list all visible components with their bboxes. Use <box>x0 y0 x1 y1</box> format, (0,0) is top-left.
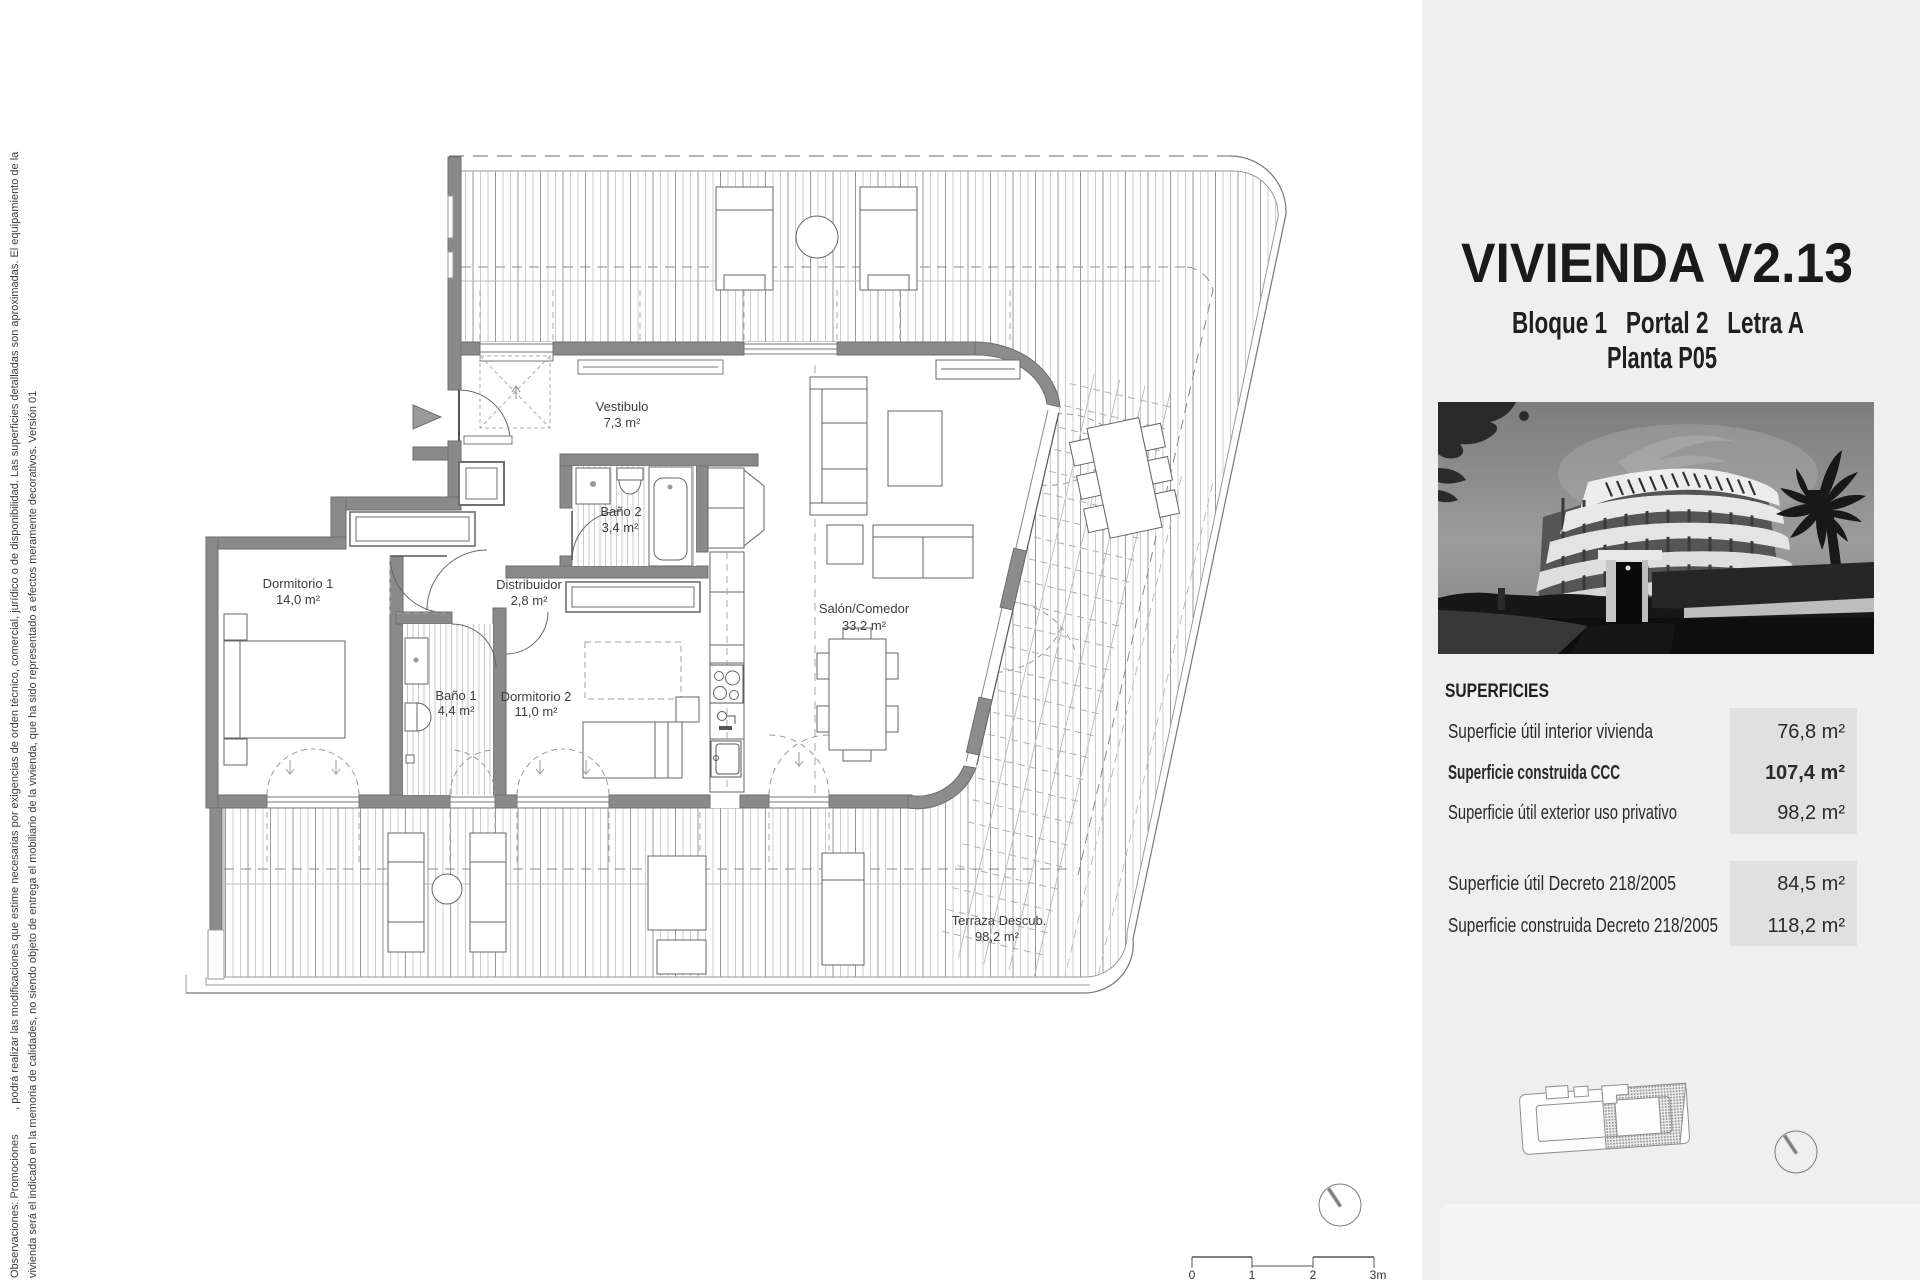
svg-text:98,2 m²: 98,2 m² <box>1777 802 1845 824</box>
svg-text:vivienda será el indicado en l: vivienda será el indicado en la memoria … <box>27 391 39 1278</box>
svg-text:1: 1 <box>1249 1268 1256 1280</box>
svg-text:Bloque 1 Portal 2 Letra A: Bloque 1 Portal 2 Letra A <box>1512 305 1804 340</box>
svg-text:Vestibulo: Vestibulo <box>596 399 649 414</box>
svg-text:0: 0 <box>1189 1268 1196 1280</box>
svg-text:107,4 m²: 107,4 m² <box>1765 762 1845 784</box>
svg-text:Planta P05: Planta P05 <box>1607 340 1717 375</box>
svg-text:VIVIENDA V2.13: VIVIENDA V2.13 <box>1461 231 1853 294</box>
svg-text:76,8 m²: 76,8 m² <box>1777 721 1845 743</box>
svg-text:2: 2 <box>1310 1268 1317 1280</box>
svg-text:Salón/Comedor: Salón/Comedor <box>819 601 910 616</box>
svg-text:7,3 m²: 7,3 m² <box>604 415 642 430</box>
svg-text:98,2 m²: 98,2 m² <box>975 929 1020 944</box>
svg-text:33,2 m²: 33,2 m² <box>842 618 887 633</box>
svg-text:11,0 m²: 11,0 m² <box>514 704 558 719</box>
svg-text:Baño 2: Baño 2 <box>600 504 641 519</box>
svg-text:SUPERFICIES: SUPERFICIES <box>1445 681 1549 702</box>
svg-text:Superficie útil interior vivie: Superficie útil interior vivienda <box>1448 721 1654 743</box>
svg-text:14,0 m²: 14,0 m² <box>276 592 321 607</box>
svg-text:Superficie construida Decreto: Superficie construida Decreto 218/2005 <box>1448 915 1718 937</box>
svg-text:Terraza Descub.: Terraza Descub. <box>952 913 1047 928</box>
svg-text:Baño 1: Baño 1 <box>435 688 476 703</box>
svg-text:Superficie útil Decreto 218/20: Superficie útil Decreto 218/2005 <box>1448 873 1676 895</box>
svg-text:3,4 m²: 3,4 m² <box>602 520 640 535</box>
svg-text:Distribuidor: Distribuidor <box>496 577 562 592</box>
svg-text:84,5 m²: 84,5 m² <box>1777 873 1845 895</box>
svg-text:118,2 m²: 118,2 m² <box>1768 915 1846 937</box>
svg-text:Dormitorio 2: Dormitorio 2 <box>501 689 572 704</box>
svg-text:Dormitorio 1: Dormitorio 1 <box>263 576 334 591</box>
svg-text:2,8 m²: 2,8 m² <box>511 593 549 608</box>
svg-text:Observaciones: Promociones: Observaciones: Promociones , podrá reali… <box>9 151 21 1278</box>
svg-text:Superficie útil exterior uso p: Superficie útil exterior uso privativo <box>1448 802 1677 824</box>
svg-text:4,4 m²: 4,4 m² <box>438 703 476 718</box>
svg-text:3m: 3m <box>1370 1268 1387 1280</box>
svg-text:Superficie construida CCC: Superficie construida CCC <box>1448 762 1620 784</box>
